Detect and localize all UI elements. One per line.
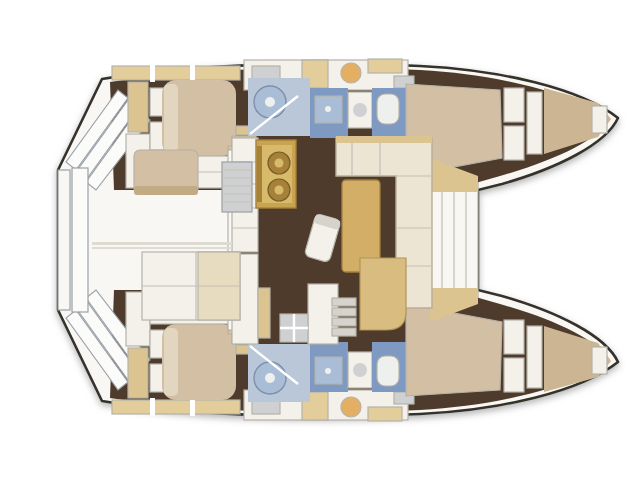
burner-center xyxy=(275,159,284,168)
deck-locker xyxy=(112,66,240,80)
sofa-top-rail xyxy=(336,136,432,143)
layout-svg xyxy=(0,0,640,479)
nightstand xyxy=(150,122,164,150)
locker-divider xyxy=(190,64,195,82)
counter-locker xyxy=(368,59,402,73)
bed-pillow xyxy=(164,84,178,152)
step xyxy=(332,308,356,316)
bow-shelf xyxy=(592,106,607,133)
fwd-wardrobe xyxy=(504,126,524,160)
transom-beam xyxy=(72,168,88,312)
galley-counter-edge xyxy=(258,288,270,338)
step xyxy=(332,298,356,306)
toilet-bowl xyxy=(353,103,367,117)
locker-divider xyxy=(150,64,155,82)
aft-cabin-wardrobe xyxy=(128,82,148,132)
fwd-shelving xyxy=(527,92,542,154)
step xyxy=(332,318,356,326)
deck-seam xyxy=(92,247,232,249)
shower-drain xyxy=(265,97,275,107)
bench-edge xyxy=(134,186,198,195)
deck-seam xyxy=(92,242,232,245)
toilet-bowl xyxy=(377,94,399,124)
fwd-wardrobe xyxy=(504,88,524,122)
yacht-layout-plan xyxy=(0,0,640,479)
transom-platform xyxy=(58,170,70,310)
step xyxy=(332,328,356,336)
stove-knobs xyxy=(257,146,262,202)
galley-stove xyxy=(256,140,296,208)
shower-drain xyxy=(325,106,331,112)
dinette-bench xyxy=(360,258,406,330)
burner-center xyxy=(275,186,284,195)
washbasin xyxy=(341,63,361,83)
nightstand xyxy=(150,88,164,116)
